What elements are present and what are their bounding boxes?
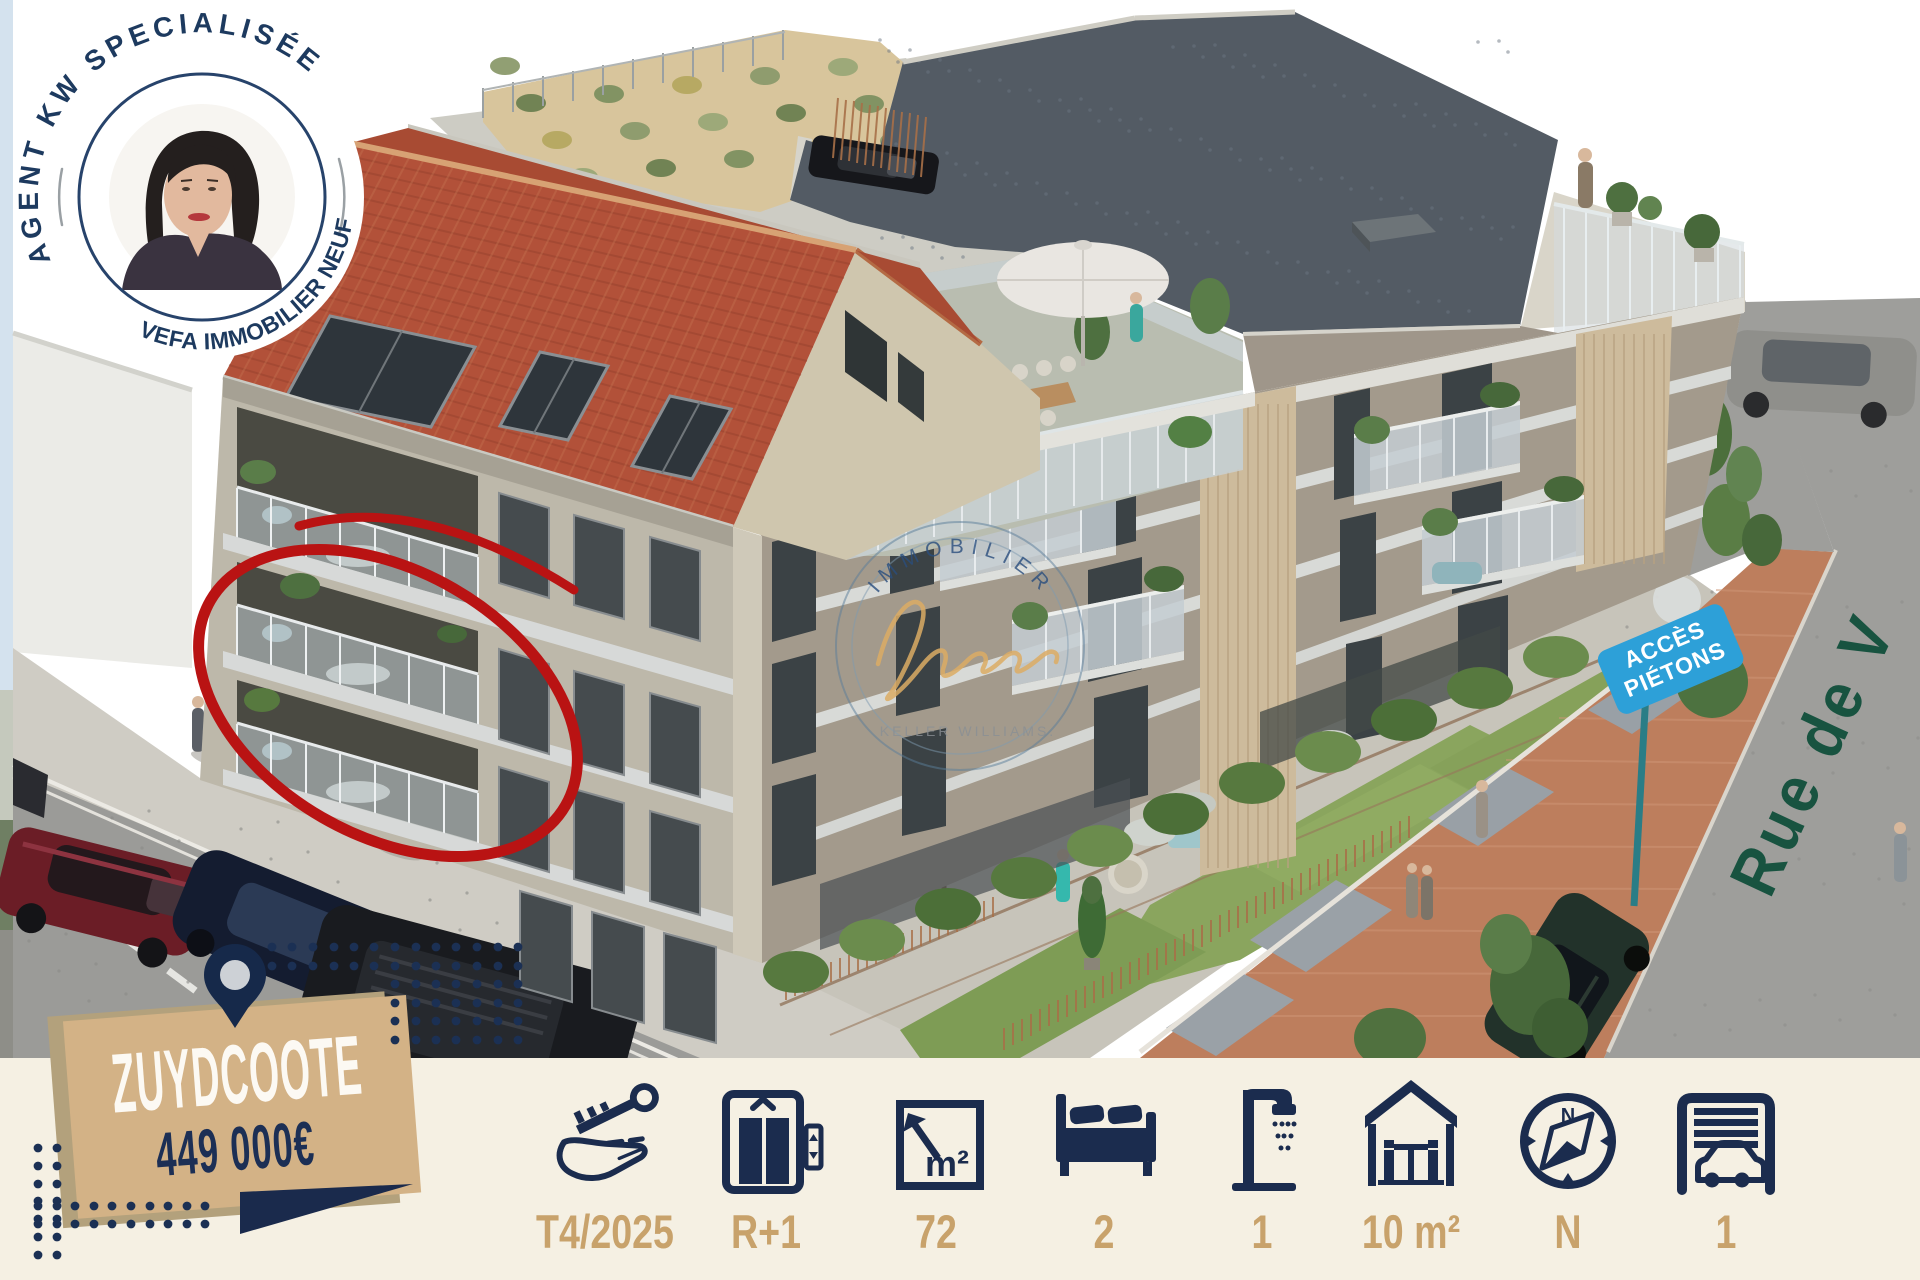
svg-text:72: 72 <box>915 1206 957 1259</box>
svg-text:1: 1 <box>1716 1206 1737 1259</box>
svg-text:2: 2 <box>1094 1206 1115 1259</box>
svg-text:10 m²: 10 m² <box>1362 1206 1460 1259</box>
svg-text:R+1: R+1 <box>731 1206 801 1259</box>
svg-text:T4/2025: T4/2025 <box>536 1206 674 1259</box>
svg-text:1: 1 <box>1252 1206 1273 1259</box>
svg-text:m²: m² <box>925 1143 969 1184</box>
svg-text:N: N <box>1554 1206 1581 1259</box>
svg-text:KELLER WILLIAMS.: KELLER WILLIAMS. <box>880 723 1056 739</box>
svg-text:449 000€: 449 000€ <box>153 1108 317 1190</box>
